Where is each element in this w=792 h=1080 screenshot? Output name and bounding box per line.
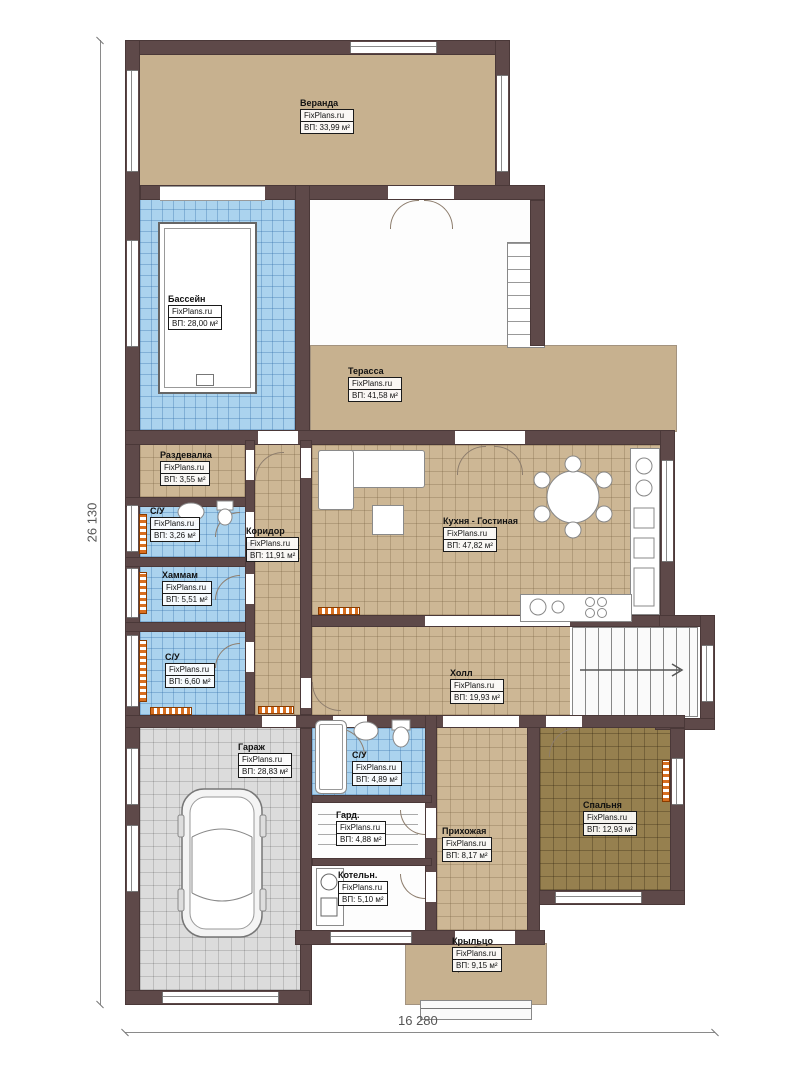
wall-middleroom-right: [530, 200, 545, 346]
radiator-wc2: [139, 640, 147, 702]
window-garage-left-1: [127, 748, 138, 805]
window-hammam-left: [127, 568, 138, 618]
room-info-box: FixPlans.ru ВП: 5,51 м²: [162, 581, 212, 606]
room-info-box: FixPlans.ru ВП: 12,93 м²: [583, 811, 637, 836]
door-gap-top-double: [388, 186, 454, 199]
room-name-garage: Гараж: [238, 742, 292, 753]
hall-floor: [312, 627, 570, 715]
room-name-veranda: Веранда: [300, 98, 354, 109]
dimension-left-value: 26 130: [84, 503, 99, 543]
radiator-garage: [150, 707, 192, 715]
door-gap-corridor-kitchen: [301, 448, 311, 478]
brand-text: FixPlans.ru: [443, 838, 491, 850]
door-gap-terrace-kitchen: [455, 431, 525, 444]
dimension-bottom-value: 16 280: [398, 1013, 438, 1028]
brand-text: FixPlans.ru: [163, 582, 211, 594]
upper-middle-room-floor: [310, 200, 530, 346]
door-gap-hammam: [246, 574, 254, 604]
window-stairbay-right: [702, 645, 713, 702]
room-label-wc2: С/У FixPlans.ru ВП: 6,60 м²: [165, 652, 215, 689]
room-name-hall: Холл: [450, 668, 504, 679]
wall-bedroom-right: [670, 728, 685, 905]
room-area-wc3: ВП: 4,89 м²: [353, 774, 401, 785]
room-label-garage: Гараж FixPlans.ru ВП: 28,83 м²: [238, 742, 292, 779]
kitchen-appliance-icons: [630, 448, 658, 613]
wall-pool-right: [295, 185, 310, 440]
door-gap-pool-veranda: [160, 186, 265, 201]
brand-text: FixPlans.ru: [584, 812, 636, 824]
wall-garage-right: [300, 728, 312, 1005]
wall-bedroom-left: [527, 715, 540, 945]
room-label-bedroom: Спальня FixPlans.ru ВП: 12,93 м²: [583, 800, 637, 837]
window-wc1-left: [127, 505, 138, 552]
room-label-hammam: Хаммам FixPlans.ru ВП: 5,51 м²: [162, 570, 212, 607]
room-label-corridor: Коридор FixPlans.ru ВП: 11,91 м²: [246, 526, 299, 563]
room-info-box: FixPlans.ru ВП: 6,60 м²: [165, 663, 215, 688]
door-gap-entry-wardrobe: [426, 808, 436, 838]
wall-div-hammam-wc2: [125, 622, 255, 632]
radiator-wc1: [139, 514, 147, 554]
room-label-wc1: С/У FixPlans.ru ВП: 3,26 м²: [150, 506, 200, 543]
radiator-corridor: [258, 706, 294, 714]
brand-text: FixPlans.ru: [161, 462, 209, 474]
window-garage-left-2: [127, 825, 138, 892]
room-info-box: FixPlans.ru ВП: 33,99 м²: [300, 109, 354, 134]
door-gap-hall-bedroom: [546, 716, 582, 727]
room-area-terrace: ВП: 41,58 м²: [349, 390, 401, 401]
room-info-box: FixPlans.ru ВП: 3,26 м²: [150, 517, 200, 542]
room-name-terrace: Терасса: [348, 366, 402, 377]
brand-text: FixPlans.ru: [353, 762, 401, 774]
room-name-boiler: Котельн.: [338, 870, 388, 881]
wall-main-upper: [125, 430, 675, 445]
room-area-bedroom: ВП: 12,93 м²: [584, 824, 636, 835]
room-area-boiler: ВП: 5,10 м²: [339, 894, 387, 905]
room-label-kitchen-living: Кухня - Гостиная FixPlans.ru ВП: 47,82 м…: [443, 516, 518, 553]
room-name-pool: Бассейн: [168, 294, 222, 305]
room-name-wc3: С/У: [352, 750, 402, 761]
room-name-hammam: Хаммам: [162, 570, 212, 581]
brand-text: FixPlans.ru: [451, 680, 503, 692]
wall-div-wc3-wardrobe: [312, 795, 432, 803]
brand-text: FixPlans.ru: [301, 110, 353, 122]
brand-text: FixPlans.ru: [337, 822, 385, 834]
radiator-kitchen-left: [318, 607, 360, 615]
dining-table: [528, 452, 618, 542]
sofa-chaise: [318, 450, 354, 510]
radiator-hammam: [139, 572, 147, 614]
room-name-corridor: Коридор: [246, 526, 299, 537]
room-info-box: FixPlans.ru ВП: 8,17 м²: [442, 837, 492, 862]
brand-text: FixPlans.ru: [169, 306, 221, 318]
room-area-corridor: ВП: 11,91 м²: [247, 550, 298, 561]
room-name-porch: Крыльцо: [452, 936, 502, 947]
window-kitchen-right: [662, 460, 673, 562]
window-boiler-bottom: [330, 932, 412, 943]
room-label-wc3: С/У FixPlans.ru ВП: 4,89 м²: [352, 750, 402, 787]
room-name-wardrobe: Гард.: [336, 810, 386, 821]
room-info-box: FixPlans.ru ВП: 5,10 м²: [338, 881, 388, 906]
room-area-garage: ВП: 28,83 м²: [239, 766, 291, 777]
room-info-box: FixPlans.ru ВП: 28,00 м²: [168, 305, 222, 330]
dimension-line-bottom: [125, 1032, 715, 1033]
coffee-table: [372, 505, 404, 535]
room-info-box: FixPlans.ru ВП: 4,88 м²: [336, 821, 386, 846]
wc3-sink-toilet: [350, 718, 424, 748]
brand-text: FixPlans.ru: [151, 518, 199, 530]
door-gap-hall-garage: [262, 716, 296, 727]
room-label-hall: Холл FixPlans.ru ВП: 19,93 м²: [450, 668, 504, 705]
room-area-hall: ВП: 19,93 м²: [451, 692, 503, 703]
room-info-box: FixPlans.ru ВП: 28,83 м²: [238, 753, 292, 778]
room-area-porch: ВП: 9,15 м²: [453, 960, 501, 971]
room-label-dressing: Раздевалка FixPlans.ru ВП: 3,55 м²: [160, 450, 212, 487]
room-info-box: FixPlans.ru ВП: 11,91 м²: [246, 537, 299, 562]
room-name-dressing: Раздевалка: [160, 450, 212, 461]
brand-text: FixPlans.ru: [166, 664, 214, 676]
stairs-direction-arrow: [580, 660, 690, 680]
room-name-wc1: С/У: [150, 506, 200, 517]
wall-top: [125, 40, 510, 55]
room-area-wc1: ВП: 3,26 м²: [151, 530, 199, 541]
brand-text: FixPlans.ru: [444, 528, 496, 540]
room-area-kitchen-living: ВП: 47,82 м²: [444, 540, 496, 551]
room-label-entry: Прихожая FixPlans.ru ВП: 8,17 м²: [442, 826, 492, 863]
wall-corridor-right: [300, 440, 312, 715]
room-area-veranda: ВП: 33,99 м²: [301, 122, 353, 133]
room-label-boiler: Котельн. FixPlans.ru ВП: 5,10 м²: [338, 870, 388, 907]
kitchen-sink-stove: [520, 594, 630, 620]
room-name-kitchen-living: Кухня - Гостиная: [443, 516, 518, 527]
room-info-box: FixPlans.ru ВП: 41,58 м²: [348, 377, 402, 402]
brand-text: FixPlans.ru: [247, 538, 298, 550]
window-bedroom-bottom: [555, 892, 642, 903]
window-pool-left: [127, 240, 138, 347]
room-info-box: FixPlans.ru ВП: 3,55 м²: [160, 461, 210, 486]
room-info-box: FixPlans.ru ВП: 4,89 м²: [352, 761, 402, 786]
room-area-hammam: ВП: 5,51 м²: [163, 594, 211, 605]
wall-div-wardrobe-boiler: [312, 858, 432, 866]
door-gap-wc2: [246, 642, 254, 672]
window-bedroom-right: [672, 758, 683, 805]
room-info-box: FixPlans.ru ВП: 19,93 м²: [450, 679, 504, 704]
door-gap-terrace-corridor: [258, 431, 298, 444]
window-wc2-left: [127, 635, 138, 707]
room-area-dressing: ВП: 3,55 м²: [161, 474, 209, 485]
room-area-wc2: ВП: 6,60 м²: [166, 676, 214, 687]
brand-text: FixPlans.ru: [453, 948, 501, 960]
room-label-porch: Крыльцо FixPlans.ru ВП: 9,15 м²: [452, 936, 502, 973]
door-gap-corridor-hall: [301, 678, 311, 708]
corridor-floor: [255, 440, 300, 715]
wall-div-wc1-hammam: [125, 557, 255, 567]
brand-text: FixPlans.ru: [349, 378, 401, 390]
bathtub: [315, 720, 347, 794]
room-label-wardrobe: Гард. FixPlans.ru ВП: 4,88 м²: [336, 810, 386, 847]
room-name-entry: Прихожая: [442, 826, 492, 837]
radiator-bedroom: [662, 760, 670, 802]
opening-hall-entry: [443, 716, 519, 727]
room-label-veranda: Веранда FixPlans.ru ВП: 33,99 м²: [300, 98, 354, 135]
window-veranda-left: [127, 70, 138, 172]
brand-text: FixPlans.ru: [239, 754, 291, 766]
room-area-entry: ВП: 8,17 м²: [443, 850, 491, 861]
pool-ladder: [196, 374, 214, 386]
room-label-terrace: Терасса FixPlans.ru ВП: 41,58 м²: [348, 366, 402, 403]
room-name-wc2: С/У: [165, 652, 215, 663]
door-gap-entry-boiler: [426, 872, 436, 902]
garage-door-opening: [162, 992, 279, 1003]
room-label-pool: Бассейн FixPlans.ru ВП: 28,00 м²: [168, 294, 222, 331]
car: [176, 785, 268, 941]
room-area-pool: ВП: 28,00 м²: [169, 318, 221, 329]
brand-text: FixPlans.ru: [339, 882, 387, 894]
window-veranda-top: [350, 42, 437, 53]
room-area-wardrobe: ВП: 4,88 м²: [337, 834, 385, 845]
floor-plan: Веранда FixPlans.ru ВП: 33,99 м² Бассейн…: [0, 0, 792, 1080]
window-veranda-right: [497, 75, 508, 172]
room-info-box: FixPlans.ru ВП: 47,82 м²: [443, 527, 497, 552]
room-name-bedroom: Спальня: [583, 800, 637, 811]
door-gap-dressing: [246, 450, 254, 480]
room-info-box: FixPlans.ru ВП: 9,15 м²: [452, 947, 502, 972]
dimension-line-left: [100, 40, 101, 1005]
